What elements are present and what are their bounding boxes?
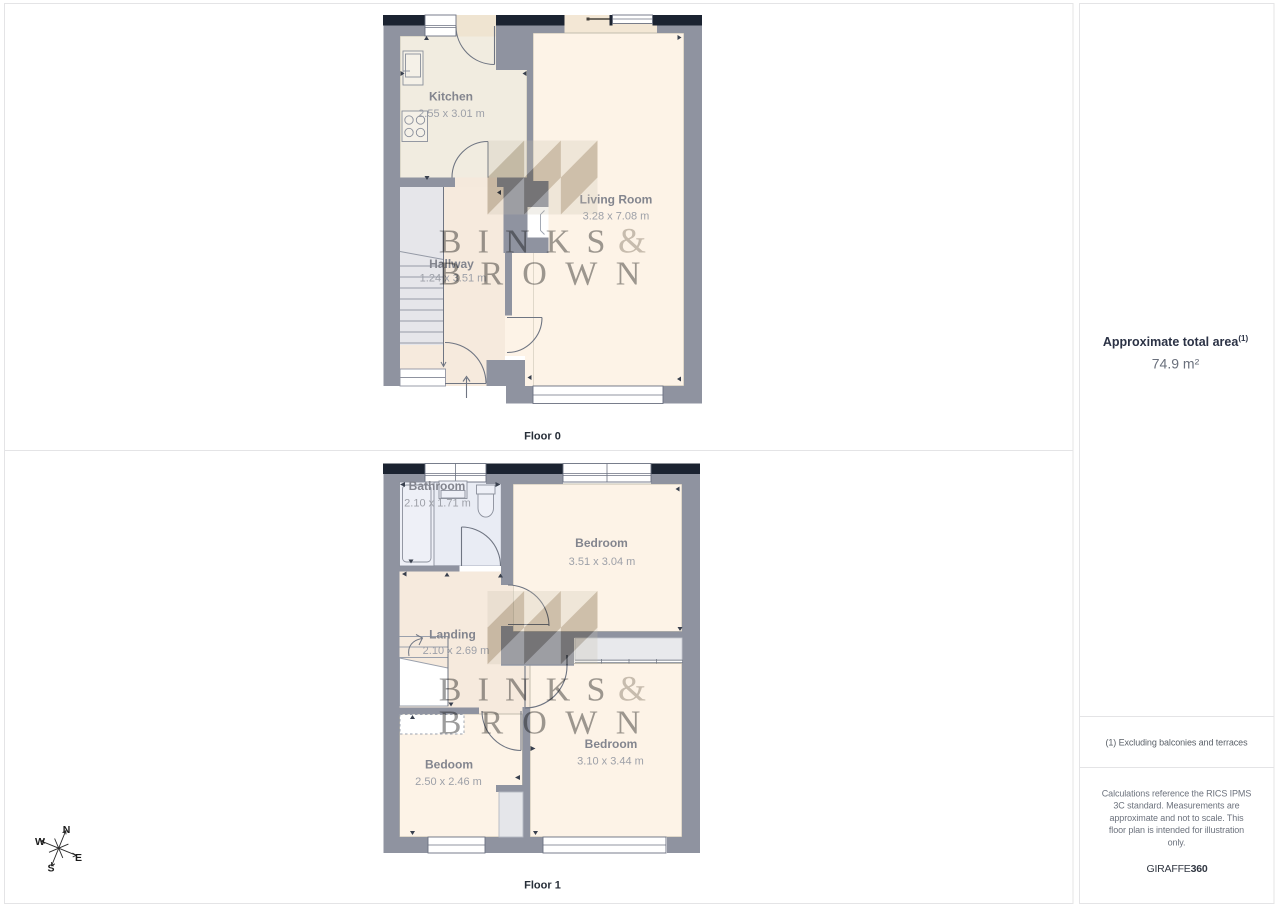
svg-text:E: E: [75, 852, 82, 864]
svg-text:S: S: [47, 863, 54, 875]
svg-text:3.51 x 3.04 m: 3.51 x 3.04 m: [569, 556, 636, 568]
svg-text:B R O W N: B R O W N: [439, 705, 641, 742]
svg-text:Kitchen: Kitchen: [429, 90, 473, 104]
svg-text:(1) Excluding balconies and te: (1) Excluding balconies and terraces: [1106, 738, 1249, 748]
svg-text:B R O W N: B R O W N: [439, 256, 641, 293]
svg-text:2.10 x 2.69 m: 2.10 x 2.69 m: [423, 645, 490, 657]
svg-text:Floor 1: Floor 1: [524, 880, 561, 892]
svg-text:Bedoom: Bedoom: [425, 758, 473, 772]
svg-text:floor plan is intended for ill: floor plan is intended for illustration: [1109, 825, 1244, 835]
svg-text:Approximate total area(1): Approximate total area(1): [1103, 334, 1249, 349]
svg-text:&: &: [618, 669, 646, 709]
svg-text:approximate and not to scale.: approximate and not to scale. This: [1109, 813, 1244, 823]
svg-text:GIRAFFE360: GIRAFFE360: [1146, 863, 1207, 875]
svg-text:N: N: [63, 824, 71, 836]
svg-text:2.55 x 3.01 m: 2.55 x 3.01 m: [418, 108, 485, 120]
svg-text:Floor 0: Floor 0: [524, 431, 561, 443]
svg-text:&: &: [618, 221, 646, 261]
svg-text:W: W: [35, 836, 45, 848]
svg-text:Bathroom: Bathroom: [409, 479, 466, 493]
svg-text:2.50 x 2.46 m: 2.50 x 2.46 m: [415, 776, 482, 788]
svg-text:Landing: Landing: [429, 628, 476, 642]
svg-text:only.: only.: [1168, 837, 1186, 847]
svg-text:3.10 x 3.44 m: 3.10 x 3.44 m: [577, 756, 644, 768]
svg-text:3C standard. Measurements are: 3C standard. Measurements are: [1113, 801, 1239, 811]
svg-text:2.10 x 1.71 m: 2.10 x 1.71 m: [404, 498, 471, 510]
svg-text:Calculations reference the RIC: Calculations reference the RICS IPMS: [1102, 789, 1252, 799]
svg-text:74.9 m²: 74.9 m²: [1152, 356, 1200, 372]
svg-text:Bedroom: Bedroom: [575, 536, 628, 550]
